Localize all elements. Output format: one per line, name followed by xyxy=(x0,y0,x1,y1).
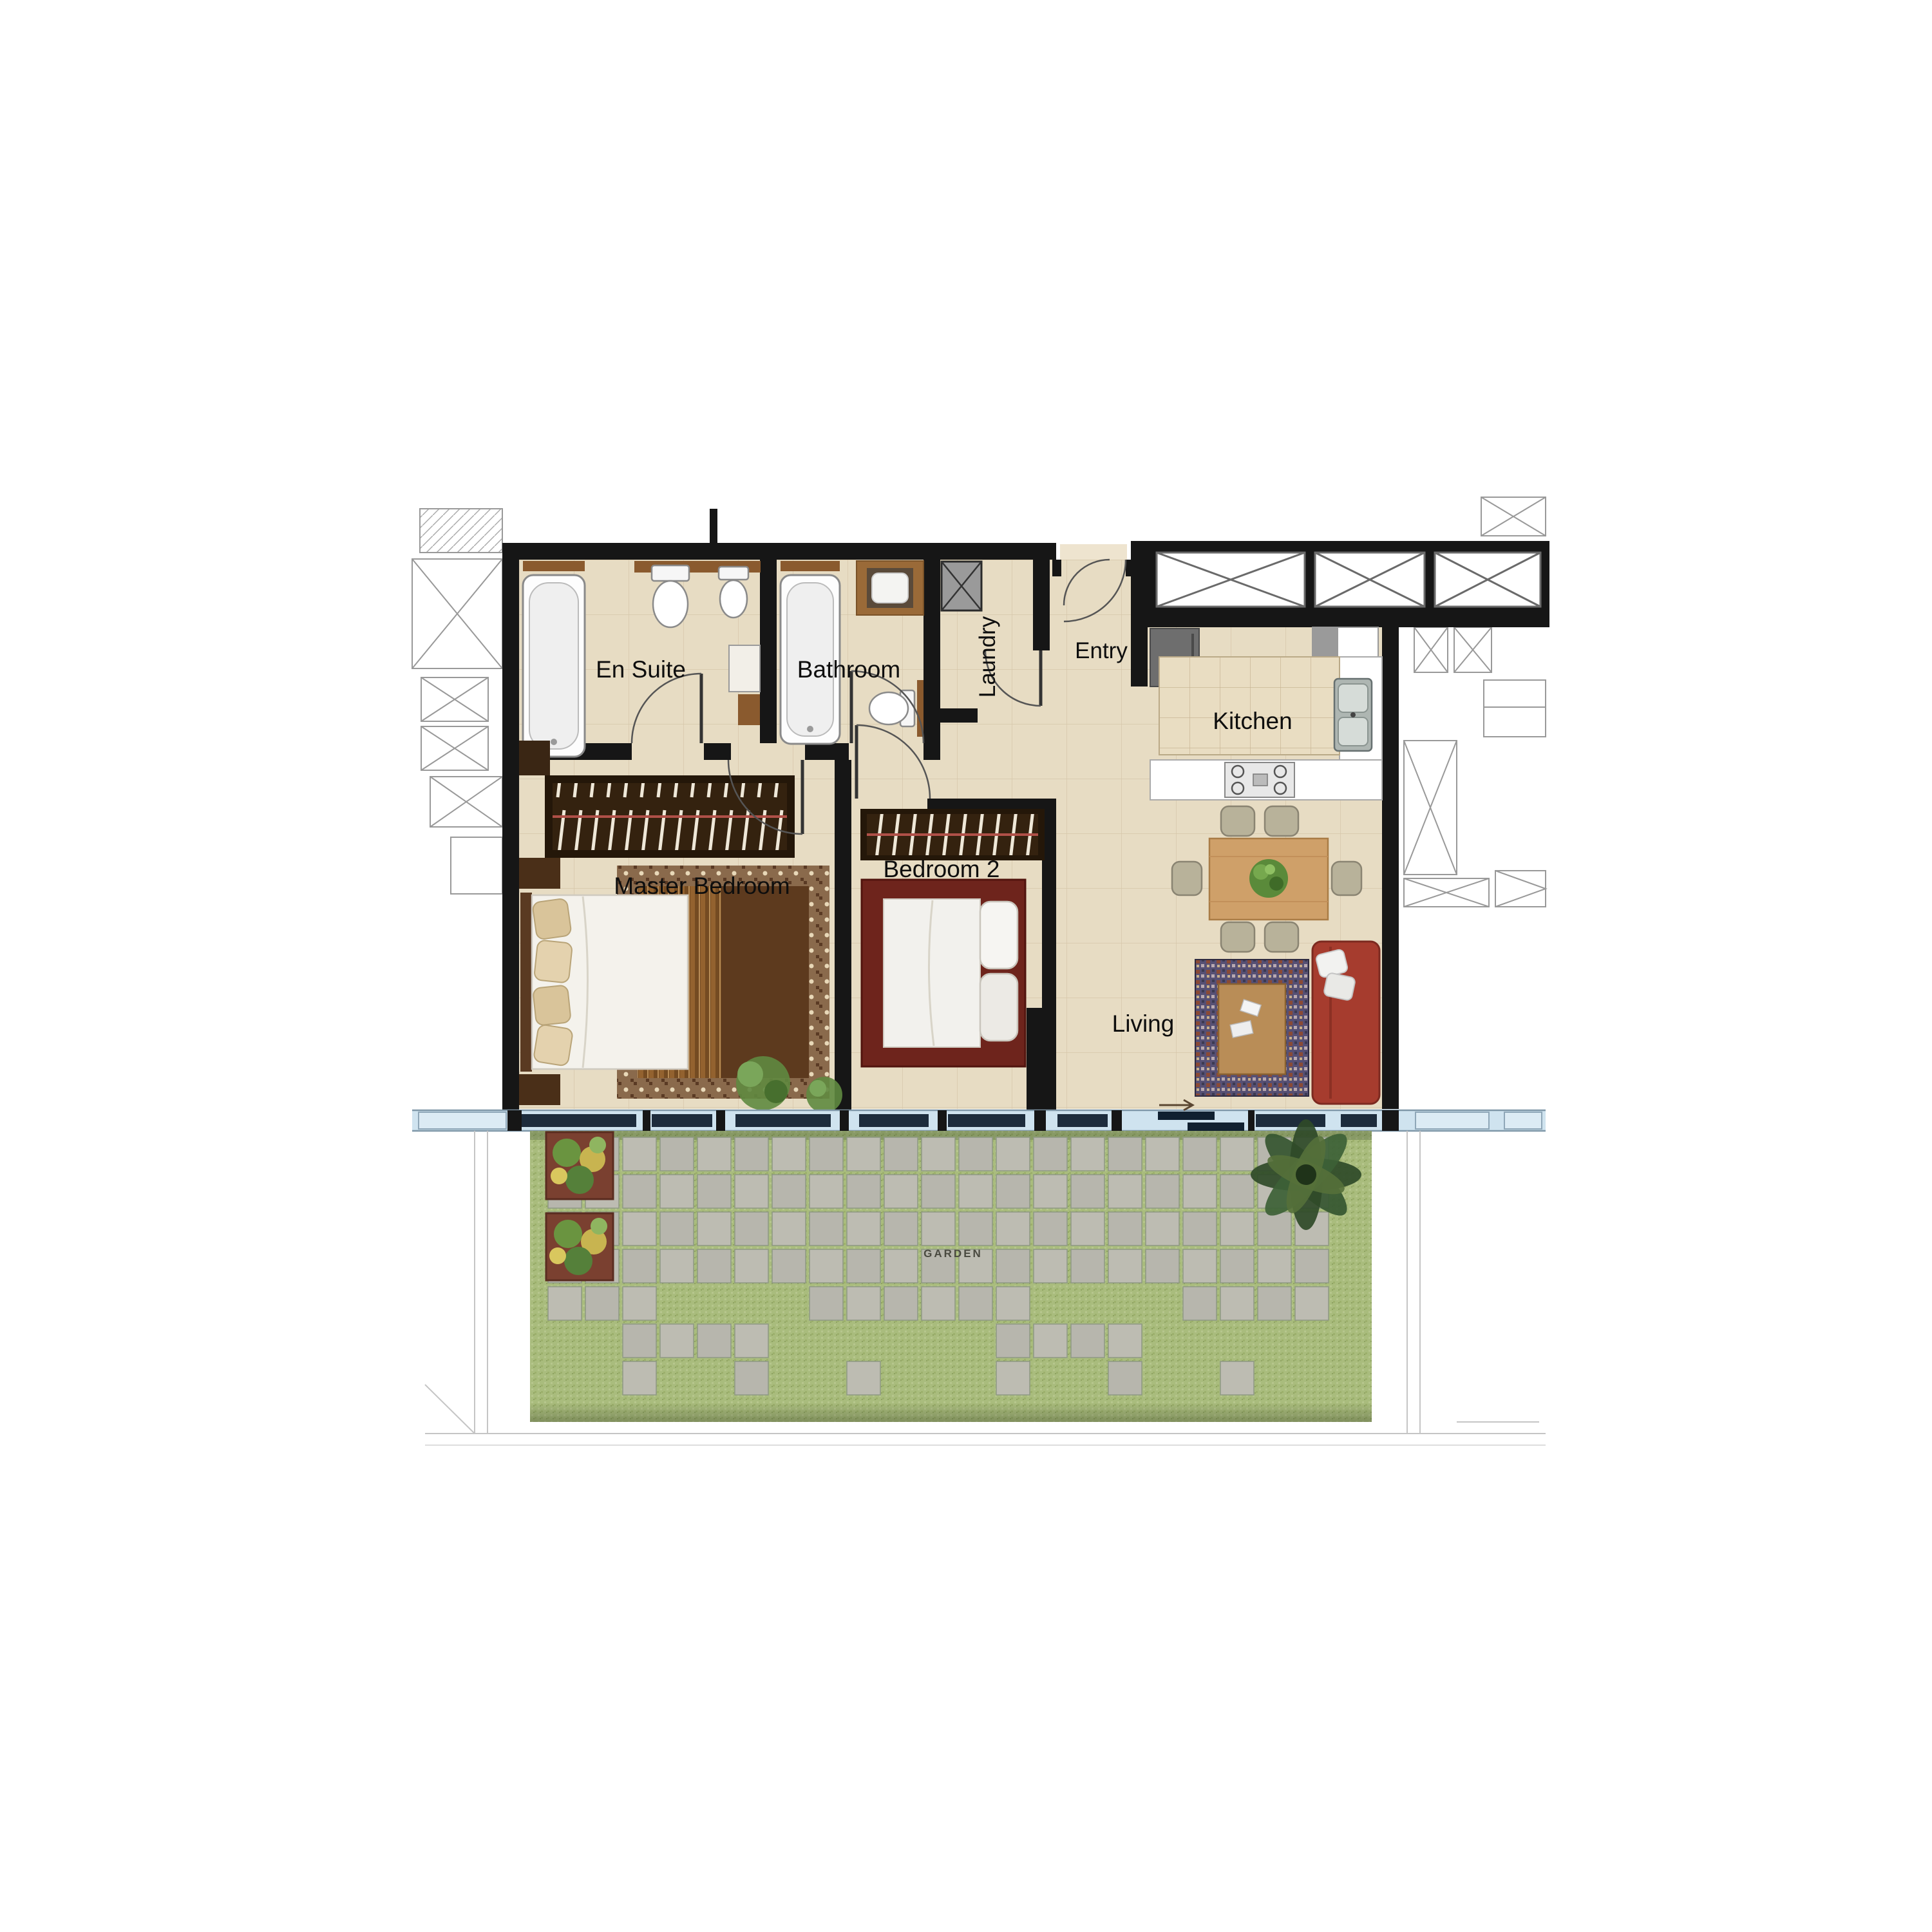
ensuite-vanity-wood xyxy=(738,694,760,725)
garden-paver xyxy=(772,1137,806,1171)
garden-paver xyxy=(1183,1175,1217,1208)
garden-paver xyxy=(1258,1212,1291,1245)
wall-laundry-bottom xyxy=(940,708,978,723)
neighbor-window-right-1 xyxy=(1416,1112,1489,1129)
garden-paver xyxy=(1034,1324,1067,1358)
room-label-garden: GARDEN xyxy=(923,1247,983,1260)
garden-paver xyxy=(810,1249,843,1283)
entry-jamb-left xyxy=(1052,560,1061,576)
wall-band-mullion-1 xyxy=(1305,553,1315,607)
garden-paver xyxy=(884,1212,918,1245)
wall-band-mullion-0 xyxy=(1148,553,1157,607)
garden-paver xyxy=(697,1175,731,1208)
nightstand xyxy=(519,1074,560,1105)
garden-paver xyxy=(884,1175,918,1208)
garden-paver xyxy=(1108,1137,1142,1171)
garden-paver xyxy=(996,1287,1030,1320)
garden-paver xyxy=(884,1287,918,1320)
garden-paver xyxy=(1071,1249,1104,1283)
garden-paver xyxy=(996,1249,1030,1283)
garden-paver xyxy=(922,1212,955,1245)
master-plant-1 xyxy=(736,1056,790,1110)
garden-paver xyxy=(735,1249,768,1283)
garden-paver xyxy=(772,1175,806,1208)
room-label-kitchen: Kitchen xyxy=(1213,708,1292,734)
garden-paver xyxy=(1146,1212,1179,1245)
master-wardrobe xyxy=(545,775,795,858)
garden-paver xyxy=(1146,1249,1179,1283)
garden-paver xyxy=(1071,1324,1104,1358)
wall-bedroom-divider xyxy=(835,760,851,1112)
bedroom2-bed xyxy=(862,880,1025,1066)
ensuite-wood-strip xyxy=(523,561,585,571)
wall-band-mullion-3 xyxy=(1540,553,1549,607)
garden-paver xyxy=(660,1137,694,1171)
garden-paver xyxy=(1258,1249,1291,1283)
garden-paver xyxy=(996,1361,1030,1395)
room-label-bedroom-2: Bedroom 2 xyxy=(884,856,1000,882)
garden-paver xyxy=(1108,1361,1142,1395)
master-corner-cabinet xyxy=(519,741,550,775)
garden-paver xyxy=(1034,1175,1067,1208)
neighbor-window-left xyxy=(419,1112,506,1129)
garden-paver xyxy=(959,1287,992,1320)
bathroom-sink xyxy=(857,561,923,615)
garden-paver xyxy=(623,1212,656,1245)
garden-paver xyxy=(697,1137,731,1171)
garden-paver xyxy=(810,1212,843,1245)
garden-paver xyxy=(697,1212,731,1245)
table-centerpiece-plant xyxy=(1249,859,1288,898)
ensuite-bidet xyxy=(719,567,748,618)
garden-paver xyxy=(697,1249,731,1283)
garden-paver xyxy=(810,1137,843,1171)
garden-paver xyxy=(623,1361,656,1395)
room-label-laundry: Laundry xyxy=(975,616,1000,697)
garden-paver xyxy=(922,1287,955,1320)
bedroom2-wardrobe xyxy=(860,809,1045,860)
garden-paver xyxy=(847,1137,880,1171)
garden-paver xyxy=(735,1175,768,1208)
garden-paver xyxy=(772,1212,806,1245)
garden-paver xyxy=(884,1249,918,1283)
garden-paver xyxy=(810,1175,843,1208)
wall-laundry-right xyxy=(1033,543,1050,650)
garden-paver xyxy=(1183,1137,1217,1171)
garden-paver xyxy=(1183,1249,1217,1283)
entry-threshold xyxy=(1060,544,1127,560)
stove xyxy=(1225,762,1294,797)
garden xyxy=(530,1119,1372,1422)
garden-paver xyxy=(1220,1212,1254,1245)
garden-paver xyxy=(996,1137,1030,1171)
pillow xyxy=(980,902,1018,969)
sofa xyxy=(1312,942,1379,1104)
living-set xyxy=(1195,942,1379,1104)
garden-paver xyxy=(548,1287,582,1320)
garden-paver xyxy=(735,1361,768,1395)
pillow xyxy=(534,940,573,983)
garden-paver xyxy=(623,1175,656,1208)
garden-palm xyxy=(1251,1119,1361,1230)
floor-plan: En Suite Bathroom Laundry Entry Kitchen … xyxy=(0,0,1932,1932)
wall-top xyxy=(502,543,1056,560)
ensuite-toilet xyxy=(652,565,689,627)
room-label-master-bedroom: Master Bedroom xyxy=(614,873,790,899)
garden-planter-1 xyxy=(546,1132,613,1199)
ensuite-vanity xyxy=(729,645,760,692)
garden-paver xyxy=(1220,1361,1254,1395)
garden-paver xyxy=(922,1175,955,1208)
room-label-entry: Entry xyxy=(1075,638,1128,663)
garden-paver xyxy=(996,1175,1030,1208)
garden-paver xyxy=(1258,1287,1291,1320)
garden-paver xyxy=(697,1324,731,1358)
garden-paver xyxy=(1295,1287,1329,1320)
garden-paver xyxy=(1220,1249,1254,1283)
garden-paver xyxy=(623,1324,656,1358)
garden-paver xyxy=(1108,1324,1142,1358)
pillow xyxy=(980,974,1018,1041)
garden-paver xyxy=(1071,1137,1104,1171)
bedroom2-furniture xyxy=(860,809,1045,1066)
wall-ensuite-right xyxy=(760,560,777,743)
wall-band-top-bar xyxy=(1131,541,1549,553)
left-hatch-panel xyxy=(420,509,502,553)
garden-paver xyxy=(810,1287,843,1320)
entry-jamb-right xyxy=(1126,560,1135,576)
garden-paver xyxy=(847,1361,880,1395)
garden-paver xyxy=(660,1249,694,1283)
garden-paver xyxy=(1220,1175,1254,1208)
wall-band-bottom-bar xyxy=(1131,607,1549,627)
garden-paver xyxy=(996,1324,1030,1358)
garden-paver xyxy=(1034,1212,1067,1245)
garden-paver xyxy=(1295,1249,1329,1283)
neighbor-window-right-2 xyxy=(1504,1112,1542,1129)
garden-paver xyxy=(623,1287,656,1320)
sofa-pillow xyxy=(1323,972,1356,1001)
garden-paver xyxy=(1108,1249,1142,1283)
garden-paver xyxy=(884,1137,918,1171)
wall-bathroom-right xyxy=(923,560,940,760)
right-counter-outline xyxy=(1484,680,1546,737)
pillow xyxy=(532,898,572,940)
room-label-bathroom: Bathroom xyxy=(797,656,900,683)
kitchen-sink xyxy=(1334,679,1372,751)
garden-paver xyxy=(847,1249,880,1283)
garden-paver xyxy=(1146,1137,1179,1171)
garden-paver xyxy=(1220,1287,1254,1320)
garden-paver xyxy=(1220,1137,1254,1171)
wall-right xyxy=(1382,627,1399,1109)
nightstand xyxy=(519,858,560,889)
shaft-box xyxy=(942,562,981,611)
right-triangle-box xyxy=(1495,871,1546,907)
band-x-boxes xyxy=(1157,553,1540,607)
garden-paver xyxy=(847,1212,880,1245)
pillow xyxy=(533,985,571,1025)
garden-paver xyxy=(959,1175,992,1208)
garden-paver xyxy=(585,1287,619,1320)
garden-paver xyxy=(623,1249,656,1283)
garden-paver xyxy=(772,1249,806,1283)
wall-left xyxy=(502,543,519,1112)
garden-paver xyxy=(1183,1287,1217,1320)
garden-paver xyxy=(623,1137,656,1171)
master-plant-2 xyxy=(806,1077,842,1113)
garden-paver xyxy=(996,1212,1030,1245)
bathroom-wood-strip xyxy=(781,561,840,571)
garden-planter-2 xyxy=(546,1213,613,1280)
garden-paver xyxy=(1108,1212,1142,1245)
garden-paver xyxy=(959,1137,992,1171)
garden-paver xyxy=(922,1137,955,1171)
garden-paver xyxy=(1146,1175,1179,1208)
garden-paver xyxy=(735,1212,768,1245)
master-bedroom-furniture xyxy=(519,741,842,1113)
garden-paver xyxy=(959,1212,992,1245)
pillow xyxy=(533,1024,573,1066)
garden-paver xyxy=(1183,1212,1217,1245)
left-outline-box xyxy=(451,837,502,894)
garden-paver xyxy=(1071,1175,1104,1208)
garden-paver xyxy=(1034,1249,1067,1283)
garden-paver xyxy=(847,1287,880,1320)
garden-paver xyxy=(1034,1137,1067,1171)
wall-wet-bottom-3 xyxy=(805,743,849,760)
garden-paver xyxy=(847,1175,880,1208)
garden-paver xyxy=(735,1137,768,1171)
room-label-living: Living xyxy=(1112,1010,1175,1037)
wall-stub-top xyxy=(710,509,717,544)
wall-wet-bottom-2 xyxy=(704,743,731,760)
garden-paver xyxy=(1108,1175,1142,1208)
garden-paver xyxy=(660,1212,694,1245)
room-label-en-suite: En Suite xyxy=(596,656,686,683)
garden-paver xyxy=(660,1175,694,1208)
wall-band-mullion-2 xyxy=(1425,553,1435,607)
wall-bedroom2-right-block xyxy=(1027,1008,1056,1110)
garden-paver xyxy=(660,1324,694,1358)
garden-paver xyxy=(735,1324,768,1358)
garden-paver xyxy=(1071,1212,1104,1245)
